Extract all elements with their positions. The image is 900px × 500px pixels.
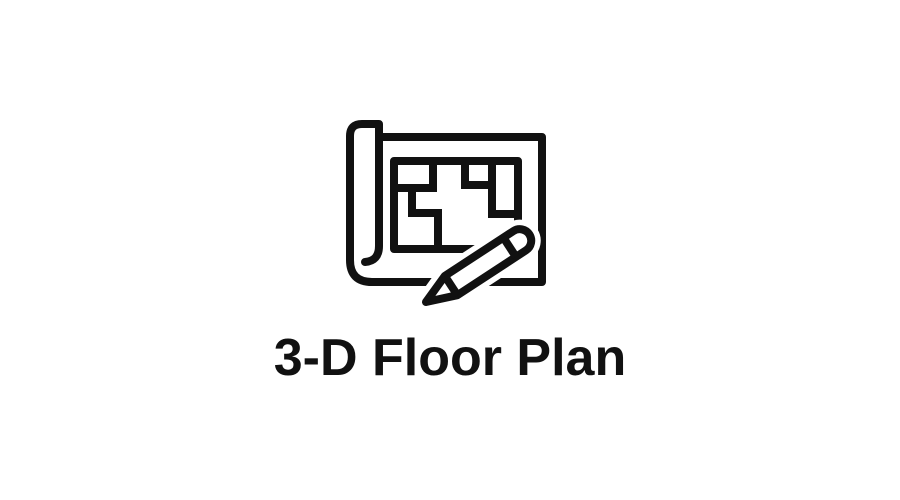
feature-label: 3-D Floor Plan — [274, 327, 626, 389]
floor-plan-icon — [336, 110, 564, 315]
feature-card: 3-D Floor Plan — [0, 0, 900, 500]
